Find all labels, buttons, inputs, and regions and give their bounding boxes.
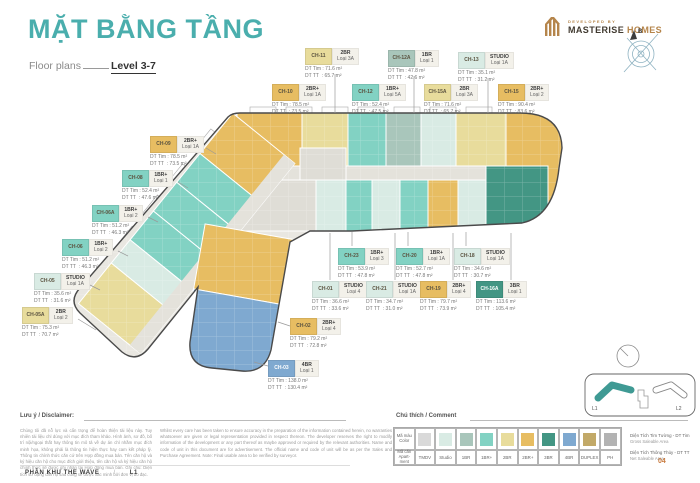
legend-label-ph: PH bbox=[600, 450, 621, 465]
legend-label-1br_plus: 1BR+ bbox=[476, 450, 497, 465]
legend-swatch-3br bbox=[538, 428, 559, 450]
legend-swatch-2br bbox=[497, 428, 518, 450]
legend-swatch-4br bbox=[559, 428, 580, 450]
floorplan-page: MẶT BẰNG TẦNG Floor plansLevel 3-7 DEVEL… bbox=[0, 0, 700, 483]
legend-label-duplex: DUPLEX bbox=[579, 450, 600, 465]
disclaimer-heading: Lưu ý / Disclaimer: bbox=[20, 413, 74, 419]
legend-label-2br_plus: 2BR+ bbox=[518, 450, 539, 465]
legend-swatch-studio bbox=[435, 428, 456, 450]
legend-label-tmdv: TMDV bbox=[415, 450, 436, 465]
legend-swatch-2br_plus bbox=[518, 428, 539, 450]
legend-label-4br: 4BR bbox=[559, 450, 580, 465]
legend-swatch-1br bbox=[456, 428, 477, 450]
legend-label-studio: Studio bbox=[435, 450, 456, 465]
legend-swatch-duplex bbox=[579, 428, 600, 450]
footer: PHÂN KHU THE WAVE / L1 bbox=[25, 470, 138, 476]
legend-label-3br: 3BR bbox=[538, 450, 559, 465]
keyplan-l1-label: L1 bbox=[592, 406, 598, 412]
legend-rule bbox=[470, 420, 688, 421]
disclaimer-rule bbox=[84, 420, 346, 421]
compass-icon: B bbox=[624, 29, 658, 72]
floor-plan: B L1 L2 bbox=[0, 0, 700, 483]
footer-level: L1 bbox=[130, 470, 138, 476]
legend-swatch-tmdv bbox=[415, 428, 436, 450]
legend-swatch-ph bbox=[600, 428, 621, 450]
clock-icon bbox=[617, 345, 639, 367]
legend-swatch-1br_plus bbox=[476, 428, 497, 450]
legend-note-1: Diện Tích Tim Tường - DT TimGross Saleab… bbox=[630, 433, 696, 444]
keyplan-l2-label: L2 bbox=[676, 406, 682, 412]
legend-heading: Chú thích / Comment bbox=[396, 413, 456, 419]
footer-separator: / bbox=[113, 470, 115, 476]
legend-table: Mã màuColorMã cănApart-mentTMDVStudio1BR… bbox=[393, 427, 622, 466]
footer-rule bbox=[20, 465, 350, 466]
legend-label-2br: 2BR bbox=[497, 450, 518, 465]
footer-zone: PHÂN KHU THE WAVE bbox=[25, 470, 99, 476]
page-number: 04 bbox=[658, 458, 666, 465]
keyplan: L1 L2 bbox=[585, 374, 695, 416]
legend-label-1br: 1BR bbox=[456, 450, 477, 465]
svg-text:B: B bbox=[638, 29, 643, 35]
disclaimer-english: Whilst every care has been taken to ensu… bbox=[160, 428, 392, 459]
